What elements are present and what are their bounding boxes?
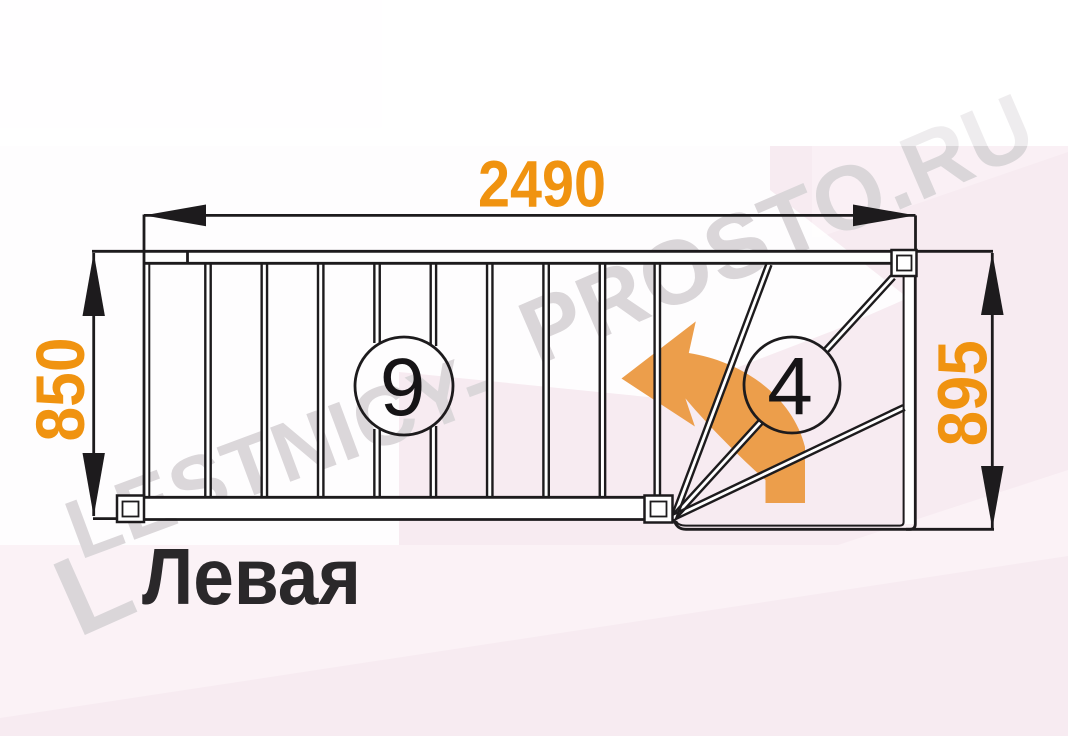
svg-text:895: 895 (924, 340, 1002, 446)
svg-text:4: 4 (767, 341, 813, 432)
svg-text:850: 850 (22, 338, 99, 442)
svg-text:Левая: Левая (142, 532, 361, 621)
svg-text:9: 9 (380, 342, 426, 433)
svg-text:2490: 2490 (478, 147, 606, 221)
